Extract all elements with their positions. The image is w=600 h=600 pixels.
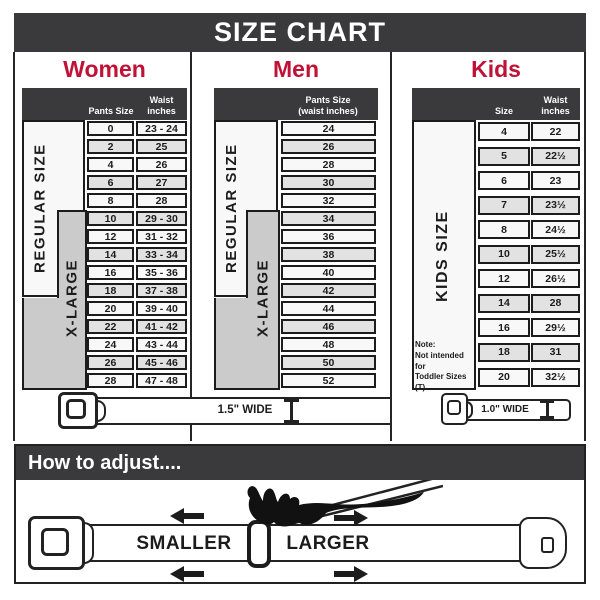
adult-belt-width-label: 1.5" WIDE xyxy=(200,404,290,416)
kids-waist-cell: 22 xyxy=(531,122,580,141)
divider-women-men xyxy=(190,52,192,441)
men-pants-size-cell: 50 xyxy=(281,355,376,370)
kids-waist-cell: 32½ xyxy=(531,368,580,387)
kids-size-cell: 8 xyxy=(478,220,530,239)
women-waist-cell: 23 - 24 xyxy=(136,121,187,136)
men-pants-size-cell: 26 xyxy=(281,139,376,154)
smaller-label: SMALLER xyxy=(128,533,240,555)
kids-size-cell: 6 xyxy=(478,171,530,190)
men-pants-size-cell: 30 xyxy=(281,175,376,190)
adult-width-indicator xyxy=(290,400,293,422)
kids-col-waist: Waist inches xyxy=(531,95,580,117)
kids-waist-cell: 31 xyxy=(531,343,580,362)
kids-size-cell: 20 xyxy=(478,368,530,387)
kids-size-cell: 4 xyxy=(478,122,530,141)
women-pants-size-cell: 6 xyxy=(87,175,134,190)
women-waist-cell: 39 - 40 xyxy=(136,301,187,316)
page-title: SIZE CHART xyxy=(14,13,586,52)
women-waist-cell: 47 - 48 xyxy=(136,373,187,388)
kids-col-size: Size xyxy=(478,106,530,117)
kids-waist-cell: 28 xyxy=(531,294,580,313)
women-xlarge-label: X-LARGE xyxy=(57,228,87,368)
women-col-waist: Waist inches xyxy=(136,95,187,117)
how-to-adjust-bar: How to adjust.... xyxy=(16,446,584,480)
kids-size-cell: 7 xyxy=(478,196,530,215)
hand-pulling-strap-illustration xyxy=(228,476,443,534)
adult-width-indicator-cap-top xyxy=(284,399,299,402)
frame-right-border xyxy=(584,52,586,441)
how-to-adjust-title: How to adjust.... xyxy=(16,446,584,480)
kids-belt-width-label: 1.0" WIDE xyxy=(473,404,537,415)
title-bar: SIZE CHART xyxy=(14,13,586,52)
women-pants-size-cell: 10 xyxy=(87,211,134,226)
smaller-arrow-top xyxy=(170,508,204,524)
women-waist-cell: 35 - 36 xyxy=(136,265,187,280)
women-pants-size-cell: 14 xyxy=(87,247,134,262)
women-pants-size-cell: 0 xyxy=(87,121,134,136)
women-pants-size-cell: 26 xyxy=(87,355,134,370)
men-pants-size-cell: 34 xyxy=(281,211,376,226)
kids-waist-cell: 26½ xyxy=(531,269,580,288)
men-table-header: Pants Size (waist inches) xyxy=(214,88,378,120)
kids-waist-cell: 29½ xyxy=(531,318,580,337)
women-waist-cell: 45 - 46 xyxy=(136,355,187,370)
men-pants-size-cell: 24 xyxy=(281,121,376,136)
women-pants-size-cell: 24 xyxy=(87,337,134,352)
women-waist-cell: 33 - 34 xyxy=(136,247,187,262)
women-pants-size-cell: 28 xyxy=(87,373,134,388)
women-waist-cell: 29 - 30 xyxy=(136,211,187,226)
women-table-header: Pants Size Waist inches xyxy=(22,88,187,120)
women-pants-size-cell: 18 xyxy=(87,283,134,298)
women-waist-cell: 27 xyxy=(136,175,187,190)
frame-left-border xyxy=(13,52,15,441)
kids-size-cell: 10 xyxy=(478,245,530,264)
kids-table-header: Size Waist inches xyxy=(412,88,580,120)
women-pants-size-cell: 2 xyxy=(87,139,134,154)
women-size-table: Pants Size Waist inches REGULAR SIZE X-L… xyxy=(22,88,187,390)
kids-waist-cell: 24½ xyxy=(531,220,580,239)
adjust-belt-tip-hole xyxy=(541,537,554,553)
men-heading: Men xyxy=(214,56,378,82)
women-waist-cell: 37 - 38 xyxy=(136,283,187,298)
kids-size-cell: 5 xyxy=(478,147,530,166)
men-pants-size-cell: 28 xyxy=(281,157,376,172)
divider-men-kids xyxy=(390,52,392,441)
men-regular-size-label: REGULAR SIZE xyxy=(216,122,247,295)
larger-label: LARGER xyxy=(282,533,374,555)
men-col-pants-size: Pants Size (waist inches) xyxy=(278,95,378,117)
women-waist-cell: 43 - 44 xyxy=(136,337,187,352)
smaller-arrow-bottom xyxy=(170,566,204,582)
kids-size-cell: 16 xyxy=(478,318,530,337)
adjust-buckle-window xyxy=(41,528,69,556)
women-pants-size-cell: 22 xyxy=(87,319,134,334)
larger-arrow-bottom xyxy=(334,566,368,582)
men-pants-size-cell: 46 xyxy=(281,319,376,334)
size-chart-infographic: SIZE CHART Women Men Kids Pants Size Wai… xyxy=(0,0,600,600)
kids-width-indicator-cap-bottom xyxy=(540,416,554,419)
kids-belt-buckle-window xyxy=(447,400,461,415)
men-pants-size-cell: 48 xyxy=(281,337,376,352)
men-pants-size-cell: 42 xyxy=(281,283,376,298)
men-size-table: Pants Size (waist inches) REGULAR SIZE X… xyxy=(214,88,378,390)
women-waist-cell: 25 xyxy=(136,139,187,154)
women-pants-size-cell: 8 xyxy=(87,193,134,208)
women-waist-cell: 41 - 42 xyxy=(136,319,187,334)
women-waist-cell: 31 - 32 xyxy=(136,229,187,244)
kids-size-table: Size Waist inches KIDS SIZE Note: Not in… xyxy=(412,88,580,390)
kids-size-cell: 12 xyxy=(478,269,530,288)
adult-width-indicator-cap-bottom xyxy=(284,420,299,423)
women-pants-size-cell: 4 xyxy=(87,157,134,172)
men-pants-size-cell: 32 xyxy=(281,193,376,208)
women-heading: Women xyxy=(22,56,187,82)
men-xlarge-label: X-LARGE xyxy=(246,228,280,368)
kids-waist-cell: 25½ xyxy=(531,245,580,264)
men-pants-size-cell: 52 xyxy=(281,373,376,388)
kids-size-cell: 18 xyxy=(478,343,530,362)
women-waist-cell: 26 xyxy=(136,157,187,172)
kids-waist-cell: 23 xyxy=(531,171,580,190)
women-col-pants-size: Pants Size xyxy=(85,106,137,117)
women-pants-size-cell: 20 xyxy=(87,301,134,316)
kids-width-indicator-cap-top xyxy=(540,400,554,403)
kids-waist-cell: 23½ xyxy=(531,196,580,215)
kids-size-cell: 14 xyxy=(478,294,530,313)
women-waist-cell: 28 xyxy=(136,193,187,208)
women-regular-size-label: REGULAR SIZE xyxy=(24,122,56,295)
women-pants-size-cell: 12 xyxy=(87,229,134,244)
women-pants-size-cell: 16 xyxy=(87,265,134,280)
men-pants-size-cell: 44 xyxy=(281,301,376,316)
men-pants-size-cell: 38 xyxy=(281,247,376,262)
men-pants-size-cell: 36 xyxy=(281,229,376,244)
kids-waist-cell: 22½ xyxy=(531,147,580,166)
kids-size-label: KIDS SIZE xyxy=(426,148,460,364)
adult-belt-buckle-window xyxy=(66,399,86,419)
kids-heading: Kids xyxy=(412,56,580,82)
kids-note: Note: Not intended for Toddler Sizes (T) xyxy=(415,340,475,394)
men-pants-size-cell: 40 xyxy=(281,265,376,280)
